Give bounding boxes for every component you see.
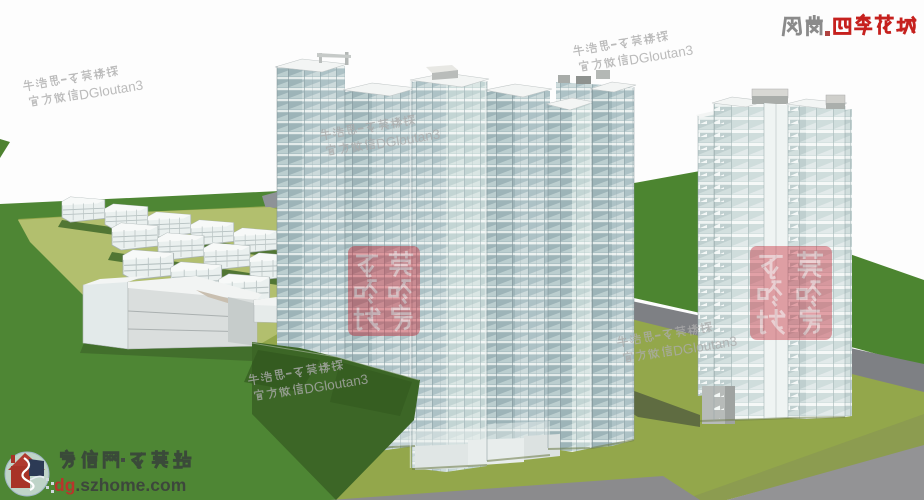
svg-text:dg.szhome.com: dg.szhome.com — [54, 475, 186, 495]
